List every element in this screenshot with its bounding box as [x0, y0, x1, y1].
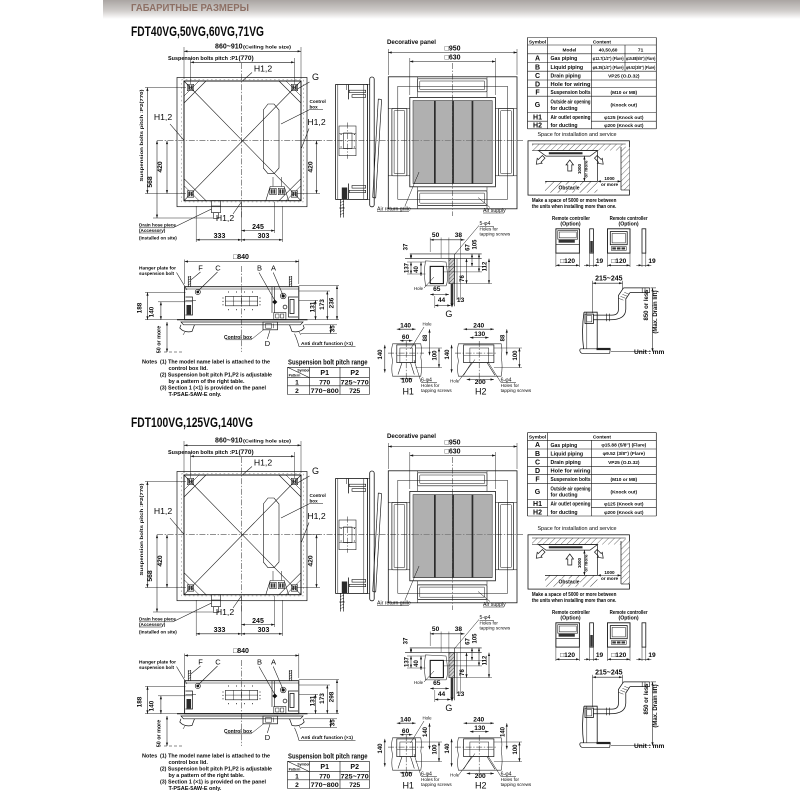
- svg-text:Hole: Hole: [422, 716, 432, 721]
- svg-text:76: 76: [460, 275, 466, 282]
- svg-text:130: 130: [474, 331, 485, 338]
- svg-text:50: 50: [432, 626, 440, 633]
- svg-text:137: 137: [405, 262, 411, 273]
- svg-text:H1,2: H1,2: [216, 213, 235, 223]
- svg-text:140: 140: [423, 726, 429, 737]
- svg-text:67: 67: [466, 244, 472, 251]
- svg-text:Model: Model: [562, 47, 576, 53]
- svg-text:φ9.52(3/8″) (Flare): φ9.52(3/8″) (Flare): [626, 65, 656, 70]
- svg-text:Notes: Notes: [142, 754, 157, 760]
- svg-text:Anti draft function (×1): Anti draft function (×1): [301, 735, 353, 741]
- svg-text:□950: □950: [445, 439, 461, 446]
- svg-text:φ9.52 (3/8″) (Flare): φ9.52 (3/8″) (Flare): [603, 451, 646, 457]
- svg-text:13: 13: [457, 297, 465, 304]
- svg-text:Air outlet opening: Air outlet opening: [551, 115, 591, 121]
- svg-text:C: C: [535, 73, 540, 80]
- svg-text:200: 200: [475, 773, 486, 780]
- svg-text:240: 240: [473, 717, 484, 724]
- svg-text:H1: H1: [402, 781, 414, 791]
- svg-text:140: 140: [378, 743, 384, 754]
- svg-text:Content: Content: [593, 434, 612, 440]
- svg-text:Hanger plate for: Hanger plate for: [139, 266, 176, 272]
- svg-text:65: 65: [433, 286, 441, 293]
- svg-text:or more: or more: [584, 160, 589, 178]
- svg-text:H2: H2: [475, 387, 487, 397]
- svg-text:Air outlet opening: Air outlet opening: [551, 502, 591, 508]
- svg-text:568: 568: [147, 570, 154, 582]
- svg-text:φ200 (Knock out): φ200 (Knock out): [604, 123, 644, 129]
- svg-text:420: 420: [157, 555, 164, 567]
- svg-text:188: 188: [137, 696, 144, 707]
- svg-text:B: B: [257, 264, 262, 273]
- svg-text:Anti draft function (×1): Anti draft function (×1): [301, 341, 353, 347]
- svg-text:G: G: [535, 489, 541, 496]
- svg-text:19: 19: [596, 652, 604, 659]
- svg-text:(Option): (Option): [560, 615, 580, 621]
- svg-text:□630: □630: [445, 54, 461, 61]
- svg-text:88: 88: [500, 334, 506, 341]
- svg-text:control box lid.: control box lid.: [169, 760, 209, 766]
- svg-text:(3) Section 1 (×1) is provided: (3) Section 1 (×1) is provided on the pa…: [160, 780, 266, 786]
- svg-text:770: 770: [319, 379, 330, 386]
- svg-text:40,50,60: 40,50,60: [599, 47, 618, 53]
- svg-text:□630: □630: [445, 448, 461, 455]
- svg-text:100: 100: [513, 744, 519, 755]
- svg-text:215~245: 215~245: [595, 670, 623, 677]
- svg-text:H1: H1: [533, 115, 542, 122]
- svg-text:B: B: [535, 451, 540, 458]
- svg-text:□120: □120: [611, 258, 626, 265]
- svg-text:P2: P2: [350, 764, 359, 771]
- svg-text:Outside air opening: Outside air opening: [551, 100, 591, 106]
- svg-text:112: 112: [482, 655, 488, 665]
- svg-text:1000: 1000: [577, 557, 582, 568]
- svg-text:Make a space of 5000 or more b: Make a space of 5000 or more between: [532, 592, 617, 598]
- svg-text:H2: H2: [533, 510, 542, 517]
- svg-text:F: F: [198, 658, 203, 667]
- svg-text:or more: or more: [601, 182, 619, 187]
- svg-text:50 or more: 50 or more: [156, 326, 162, 354]
- svg-text:67: 67: [466, 638, 472, 645]
- svg-text:D: D: [265, 733, 271, 742]
- svg-text:φ125 (Knock out): φ125 (Knock out): [604, 115, 644, 121]
- svg-text:Pattern: Pattern: [289, 768, 301, 772]
- svg-text:A: A: [271, 264, 276, 273]
- svg-text:tapping screws: tapping screws: [501, 388, 532, 393]
- svg-text:Unit : mm: Unit : mm: [634, 743, 665, 750]
- svg-text:D: D: [535, 81, 540, 88]
- svg-text:box: box: [310, 104, 319, 109]
- svg-text:D: D: [535, 468, 540, 475]
- svg-text:725~770: 725~770: [341, 379, 369, 386]
- svg-text:(Knock out): (Knock out): [610, 489, 637, 495]
- svg-text:71: 71: [638, 47, 644, 53]
- svg-text:Suspension bolts pitch :P2(770: Suspension bolts pitch :P2(770): [139, 483, 145, 576]
- svg-text:φ15.88 (5/8″) (Flare): φ15.88 (5/8″) (Flare): [601, 443, 646, 449]
- svg-text:Notes: Notes: [142, 360, 157, 366]
- svg-text:Suspension bolts: Suspension bolts: [551, 90, 591, 96]
- svg-text:38: 38: [455, 232, 463, 239]
- svg-text:568: 568: [147, 176, 154, 188]
- svg-text:140: 140: [445, 743, 451, 754]
- svg-text:44: 44: [438, 297, 446, 304]
- svg-text:by a pattern of the right tabl: by a pattern of the right table.: [169, 379, 245, 385]
- svg-text:for ducting: for ducting: [551, 106, 578, 112]
- svg-text:Hole: Hole: [414, 680, 424, 685]
- svg-text:(1) The model name label is at: (1) The model name label is attached to …: [160, 754, 270, 760]
- svg-text:Gas piping: Gas piping: [551, 443, 578, 449]
- svg-text:100: 100: [513, 350, 519, 361]
- svg-text:Unit : mm: Unit : mm: [634, 349, 665, 356]
- svg-text:Hole: Hole: [422, 322, 432, 327]
- svg-text:44: 44: [438, 691, 446, 698]
- svg-text:D: D: [265, 339, 271, 348]
- svg-text:H1,2: H1,2: [154, 112, 173, 122]
- svg-text:236: 236: [329, 297, 336, 308]
- svg-text:140: 140: [400, 323, 411, 330]
- svg-text:1000: 1000: [604, 570, 615, 575]
- svg-text:333: 333: [214, 627, 226, 634]
- svg-text:suspension bolt: suspension bolt: [139, 665, 174, 671]
- svg-text:112: 112: [482, 261, 488, 271]
- svg-text:2: 2: [295, 782, 299, 789]
- svg-text:H1: H1: [533, 501, 542, 508]
- svg-text:860~910: 860~910: [215, 43, 243, 50]
- svg-text:the units when installing more: the units when installing more than one.: [532, 204, 617, 210]
- svg-text:□950: □950: [445, 45, 461, 52]
- svg-text:tapping screws: tapping screws: [421, 782, 452, 787]
- svg-text:Symbol: Symbol: [529, 434, 546, 440]
- svg-text:φ125 (Knock out): φ125 (Knock out): [604, 502, 644, 508]
- svg-text:(770): (770): [239, 55, 254, 62]
- svg-text:C: C: [535, 460, 540, 467]
- svg-text:1000: 1000: [604, 176, 615, 181]
- svg-text:140: 140: [445, 349, 451, 360]
- svg-text:(M10 or M8): (M10 or M8): [610, 477, 637, 483]
- svg-text:(770): (770): [239, 449, 254, 456]
- svg-text:P2: P2: [350, 370, 359, 377]
- svg-text:140: 140: [500, 726, 506, 737]
- svg-text:ГАБАРИТНЫЕ РАЗМЕРЫ: ГАБАРИТНЫЕ РАЗМЕРЫ: [131, 2, 249, 14]
- svg-text:by a pattern of the right tabl: by a pattern of the right table.: [169, 773, 245, 779]
- svg-text:tapping screws: tapping screws: [421, 388, 452, 393]
- svg-text:Liquid piping: Liquid piping: [551, 65, 584, 71]
- svg-text:C: C: [215, 264, 221, 273]
- svg-text:140: 140: [400, 717, 411, 724]
- svg-text:the units when installing more: the units when installing more than one.: [532, 598, 617, 604]
- svg-text:38: 38: [455, 626, 463, 633]
- svg-text:860~910: 860~910: [215, 437, 243, 444]
- svg-text:Suspension bolt pitch range: Suspension bolt pitch range: [288, 754, 368, 761]
- svg-text:(1) The model name label is at: (1) The model name label is attached to …: [160, 360, 270, 366]
- svg-text:G: G: [535, 102, 541, 109]
- svg-text:Suspension bolts pitch :P1: Suspension bolts pitch :P1: [168, 56, 238, 62]
- svg-text:(Accessory): (Accessory): [139, 228, 166, 233]
- svg-text:303: 303: [258, 627, 270, 634]
- svg-text:P1: P1: [320, 370, 329, 377]
- svg-text:(Option): (Option): [619, 221, 639, 227]
- svg-text:333: 333: [214, 233, 226, 240]
- svg-text:Suspension bolt pitch range: Suspension bolt pitch range: [288, 360, 368, 367]
- svg-text:298: 298: [329, 691, 336, 702]
- svg-text:245: 245: [252, 224, 264, 231]
- svg-text:Hanger plate for: Hanger plate for: [139, 660, 176, 666]
- svg-text:Pattern: Pattern: [289, 374, 301, 378]
- svg-text:□120: □120: [560, 258, 575, 265]
- svg-text:G: G: [312, 466, 319, 476]
- svg-text:H1,2: H1,2: [216, 607, 235, 617]
- svg-text:H1,2: H1,2: [307, 117, 326, 127]
- svg-text:Space for installation and ser: Space for installation and service: [537, 132, 616, 138]
- svg-text:173: 173: [319, 299, 326, 310]
- svg-text:37: 37: [404, 637, 410, 644]
- svg-text:H2: H2: [533, 123, 542, 130]
- svg-text:A: A: [535, 442, 540, 449]
- svg-text:(Max. Drain lift): (Max. Drain lift): [653, 290, 659, 333]
- svg-text:1: 1: [295, 379, 299, 386]
- svg-text:Suspension bolts pitch :P1: Suspension bolts pitch :P1: [168, 450, 238, 456]
- svg-text:19: 19: [648, 652, 656, 659]
- svg-text:suspension bolt: suspension bolt: [139, 271, 174, 277]
- svg-text:1000: 1000: [577, 163, 582, 174]
- svg-text:Hole: Hole: [414, 286, 424, 291]
- svg-text:188: 188: [137, 302, 144, 313]
- svg-text:420: 420: [307, 161, 314, 173]
- svg-text:Obstacle: Obstacle: [558, 579, 579, 585]
- svg-text:F: F: [198, 264, 203, 273]
- svg-text:240: 240: [473, 323, 484, 330]
- svg-text:50 or more: 50 or more: [156, 720, 162, 748]
- svg-text:770~800: 770~800: [311, 782, 339, 789]
- svg-text:88: 88: [423, 334, 429, 341]
- svg-text:T-PSAE-5AW-E only.: T-PSAE-5AW-E only.: [169, 392, 222, 398]
- svg-text:F: F: [535, 477, 540, 484]
- svg-text:140: 140: [149, 306, 156, 317]
- svg-text:100: 100: [433, 350, 439, 361]
- svg-text:Control: Control: [310, 99, 326, 104]
- svg-text:□840: □840: [233, 254, 249, 261]
- svg-text:215~245: 215~245: [595, 276, 623, 283]
- svg-text:Hole: Hole: [450, 773, 460, 778]
- svg-text:Symbol: Symbol: [297, 369, 309, 373]
- svg-text:Obstacle: Obstacle: [558, 185, 579, 191]
- svg-text:50: 50: [432, 232, 440, 239]
- svg-text:2: 2: [295, 388, 299, 395]
- svg-text:□120: □120: [560, 652, 575, 659]
- svg-text:19: 19: [596, 258, 604, 265]
- svg-text:76: 76: [460, 669, 466, 676]
- svg-text:140: 140: [149, 700, 156, 711]
- svg-text:(Option): (Option): [619, 615, 639, 621]
- svg-text:725: 725: [349, 388, 360, 395]
- svg-text:725: 725: [349, 782, 360, 789]
- svg-text:Space for installation and ser: Space for installation and service: [537, 526, 616, 532]
- svg-text:(Ceiling hole size): (Ceiling hole size): [243, 44, 291, 50]
- svg-text:control box lid.: control box lid.: [169, 366, 209, 372]
- svg-text:□840: □840: [233, 648, 249, 655]
- svg-text:Decorative panel: Decorative panel: [387, 434, 436, 440]
- svg-text:(2) Suspension bolt pitch P1,P: (2) Suspension bolt pitch P1,P2 is adjus…: [160, 373, 272, 379]
- svg-text:H1,2: H1,2: [307, 511, 326, 521]
- svg-text:for ducting: for ducting: [551, 492, 578, 498]
- svg-text:770~800: 770~800: [311, 388, 339, 395]
- svg-text:(M10 or M8): (M10 or M8): [610, 90, 637, 96]
- svg-text:tapping screws: tapping screws: [480, 626, 511, 631]
- svg-text:Drain piping: Drain piping: [551, 460, 581, 466]
- svg-text:Symbol: Symbol: [529, 39, 546, 45]
- svg-text:Drain piping: Drain piping: [551, 74, 581, 80]
- svg-text:FDT100VG,125VG,140VG: FDT100VG,125VG,140VG: [131, 415, 253, 430]
- svg-text:box: box: [310, 498, 319, 503]
- svg-text:Hole for wiring: Hole for wiring: [551, 82, 591, 88]
- svg-text:850 or less: 850 or less: [644, 683, 650, 715]
- svg-text:137: 137: [405, 656, 411, 667]
- svg-text:(Max. Drain lift): (Max. Drain lift): [653, 684, 659, 727]
- svg-text:or more: or more: [584, 554, 589, 572]
- svg-text:P1: P1: [320, 764, 329, 771]
- svg-text:(3) Section 1 (×1) is provided: (3) Section 1 (×1) is provided on the pa…: [160, 386, 266, 392]
- svg-text:H1,2: H1,2: [254, 64, 273, 74]
- svg-text:T-PSAE-5AW-E only.: T-PSAE-5AW-E only.: [169, 786, 222, 792]
- svg-text:B: B: [257, 658, 262, 667]
- svg-text:105: 105: [472, 239, 478, 250]
- svg-text:H1: H1: [402, 387, 414, 397]
- svg-text:173: 173: [319, 693, 326, 704]
- svg-text:37: 37: [404, 243, 410, 250]
- svg-text:Suspension bolts: Suspension bolts: [551, 477, 591, 483]
- svg-text:130: 130: [474, 725, 485, 732]
- svg-text:φ15.88(5/8″) (Flare): φ15.88(5/8″) (Flare): [626, 56, 656, 61]
- svg-text:Hole: Hole: [450, 379, 460, 384]
- svg-text:or more: or more: [601, 576, 619, 581]
- svg-text:φ6.35(1/4″) (Flare): φ6.35(1/4″) (Flare): [593, 65, 625, 70]
- svg-text:(Installed on site): (Installed on site): [139, 630, 177, 635]
- svg-text:40: 40: [414, 660, 420, 667]
- svg-text:850 or less: 850 or less: [644, 289, 650, 321]
- svg-text:Make a space of 5000 or more b: Make a space of 5000 or more between: [532, 198, 617, 204]
- svg-text:B: B: [535, 65, 540, 72]
- svg-text:C: C: [215, 658, 221, 667]
- svg-text:for ducting: for ducting: [551, 510, 578, 516]
- svg-text:303: 303: [258, 233, 270, 240]
- svg-text:(Option): (Option): [560, 221, 580, 227]
- svg-text:A: A: [535, 56, 540, 63]
- svg-text:G: G: [445, 309, 452, 319]
- svg-text:tapping screws: tapping screws: [480, 232, 511, 237]
- svg-text:1: 1: [295, 773, 299, 780]
- svg-text:Gas piping: Gas piping: [551, 56, 578, 62]
- svg-text:Suspension bolts pitch :P2(770: Suspension bolts pitch :P2(770): [139, 89, 145, 182]
- svg-text:140: 140: [378, 349, 384, 360]
- svg-text:□120: □120: [611, 652, 626, 659]
- svg-text:40: 40: [414, 266, 420, 273]
- svg-text:H1,2: H1,2: [154, 506, 173, 516]
- svg-text:F: F: [535, 90, 540, 97]
- svg-text:FDT40VG,50VG,60VG,71VG: FDT40VG,50VG,60VG,71VG: [131, 24, 264, 39]
- svg-text:Drain hose piece: Drain hose piece: [139, 617, 176, 622]
- svg-text:420: 420: [307, 555, 314, 567]
- svg-text:tapping screws: tapping screws: [501, 782, 532, 787]
- svg-text:200: 200: [475, 379, 486, 386]
- svg-text:100: 100: [433, 744, 439, 755]
- svg-text:(2) Suspension bolt pitch P1,P: (2) Suspension bolt pitch P1,P2 is adjus…: [160, 767, 272, 773]
- svg-text:G: G: [445, 703, 452, 713]
- svg-text:(Knock out): (Knock out): [610, 102, 637, 108]
- svg-text:VP25 (O.D.32): VP25 (O.D.32): [608, 74, 640, 80]
- svg-text:Symbol: Symbol: [297, 763, 309, 767]
- svg-text:G: G: [312, 72, 319, 82]
- svg-text:Content: Content: [593, 39, 612, 45]
- svg-text:245: 245: [252, 618, 264, 625]
- svg-text:for ducting: for ducting: [551, 123, 578, 129]
- svg-text:725~770: 725~770: [341, 773, 369, 780]
- svg-text:H1,2: H1,2: [254, 458, 273, 468]
- svg-text:H2: H2: [475, 781, 487, 791]
- svg-text:Decorative panel: Decorative panel: [387, 40, 436, 46]
- svg-text:VP25 (O.D.32): VP25 (O.D.32): [608, 460, 640, 466]
- svg-text:Hole for wiring: Hole for wiring: [551, 469, 591, 475]
- svg-text:A: A: [271, 658, 276, 667]
- svg-text:13: 13: [457, 691, 465, 698]
- svg-text:(Accessory): (Accessory): [139, 622, 166, 627]
- svg-text:19: 19: [648, 258, 656, 265]
- svg-text:(Ceiling hole size): (Ceiling hole size): [243, 438, 291, 444]
- svg-text:Liquid piping: Liquid piping: [551, 452, 584, 458]
- svg-text:Control: Control: [310, 493, 326, 498]
- svg-text:φ200 (Knock out): φ200 (Knock out): [604, 510, 644, 516]
- svg-text:65: 65: [433, 680, 441, 687]
- svg-text:Drain hose piece: Drain hose piece: [139, 223, 176, 228]
- svg-text:(Installed on site): (Installed on site): [139, 236, 177, 241]
- svg-text:φ12.7(1/2″) (Flare): φ12.7(1/2″) (Flare): [593, 56, 625, 61]
- svg-text:105: 105: [472, 633, 478, 644]
- svg-text:420: 420: [157, 161, 164, 173]
- svg-text:770: 770: [319, 773, 330, 780]
